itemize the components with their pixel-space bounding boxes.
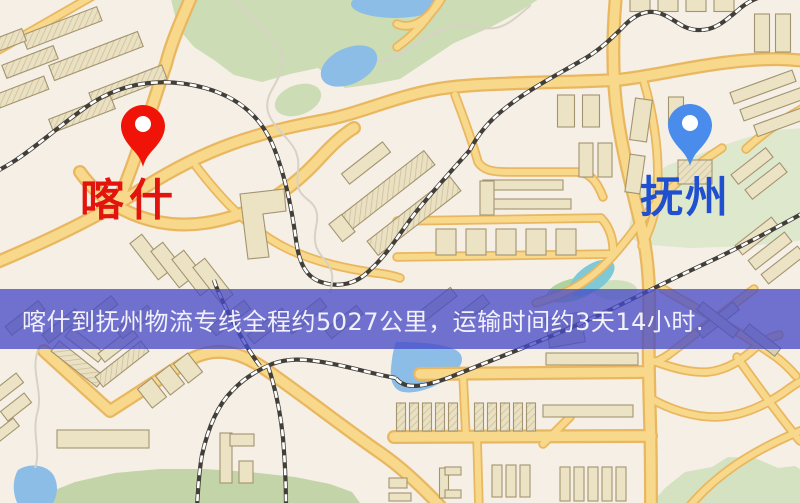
logistics-map-image: 喀什 抚州 喀什到抚州物流专线全程约5027公里，运输时间约3天14小时. [0,0,800,503]
origin-label: 喀什 [80,179,178,223]
map-canvas [0,0,800,503]
destination-label: 抚州 [640,177,730,220]
route-info-banner: 喀什到抚州物流专线全程约5027公里，运输时间约3天14小时. [0,289,800,349]
route-summary-text: 喀什到抚州物流专线全程约5027公里，运输时间约3天14小时. [22,302,704,337]
